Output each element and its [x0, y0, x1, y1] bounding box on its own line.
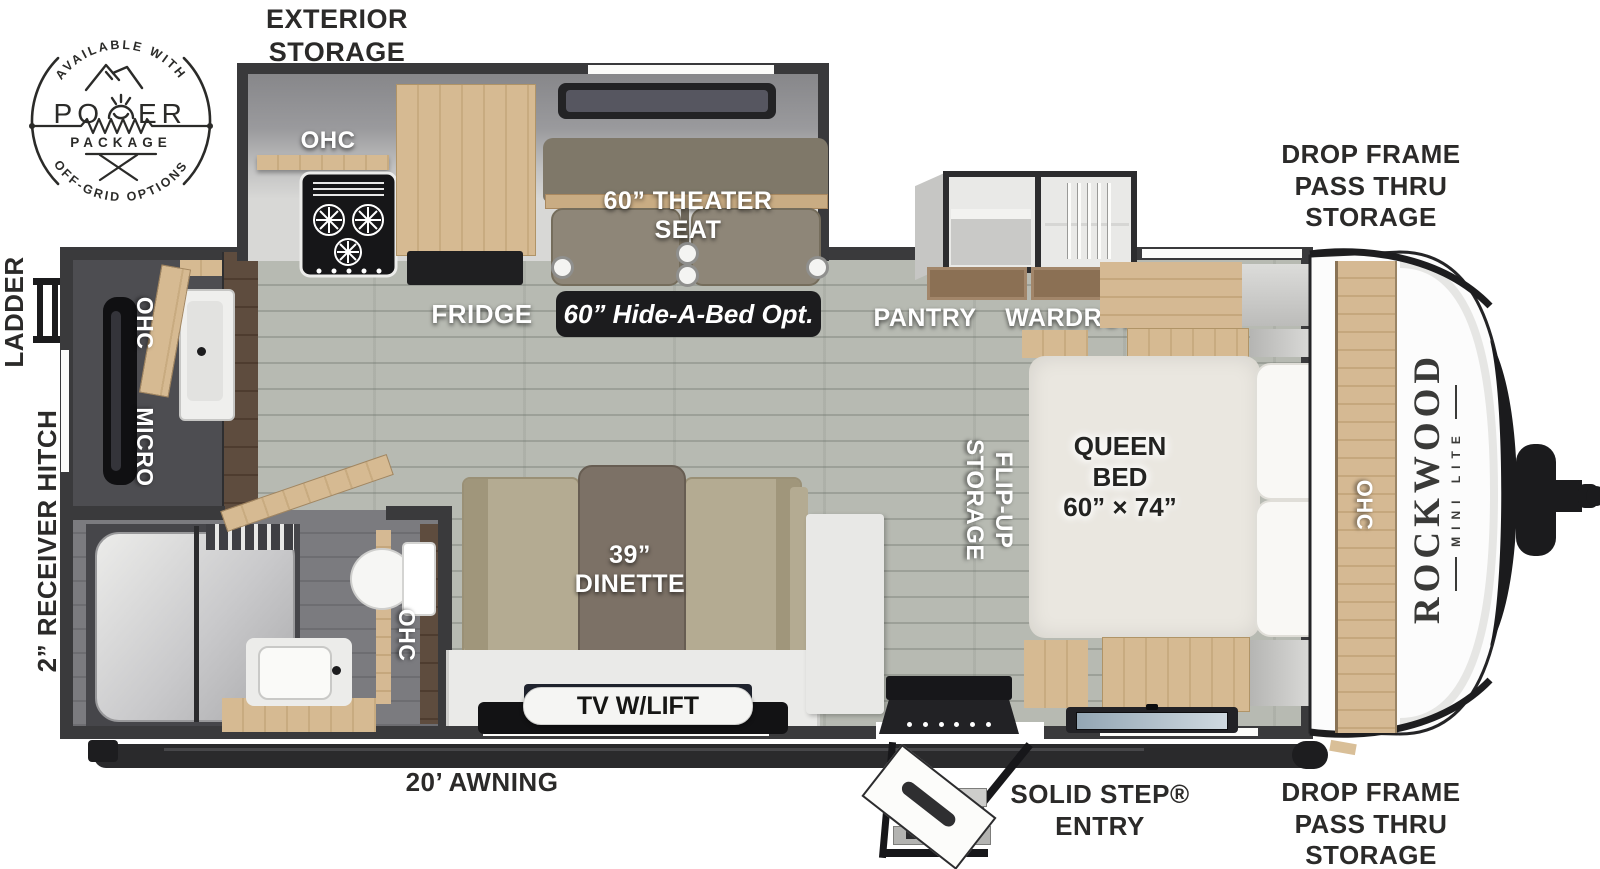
sun-icon [109, 95, 133, 118]
window-glass [566, 90, 768, 112]
dot [923, 722, 928, 727]
bathroom-ohc-label: OHC [394, 596, 420, 674]
ladder-label: LADDER [0, 232, 29, 392]
dot [954, 722, 959, 727]
solid-step-entry-label: SOLID STEP® ENTRY [995, 779, 1205, 842]
badge-arc-top-text: AVAILABLE WITH [53, 38, 190, 83]
dot [986, 722, 991, 727]
hatch-handle [1146, 704, 1158, 710]
dot [939, 722, 944, 727]
awning-end-cap [1292, 741, 1328, 769]
badge-package-text: PACKAGE [70, 135, 172, 150]
pantry-shelf-shadow [951, 219, 1031, 265]
shower-head-icon [206, 524, 294, 550]
micro-label: MICRO [132, 395, 158, 499]
floorplan-canvas: AVAILABLE WITH OFF-GRID OPTIONS PO ER PA… [0, 0, 1600, 869]
faucet-icon [332, 666, 341, 675]
hanger-icon [1097, 183, 1101, 259]
cupholder-icon [676, 242, 699, 265]
galley-sink [179, 289, 235, 421]
power-package-badge: AVAILABLE WITH OFF-GRID OPTIONS PO ER PA… [28, 28, 214, 214]
bedroom-window-top [1142, 249, 1302, 258]
hanger-icon [1087, 183, 1091, 259]
bed-frame-wood [1022, 330, 1088, 358]
bed-head-wood-band [1100, 262, 1242, 328]
exterior-storage-label: EXTERIOR STORAGE [232, 3, 442, 69]
stabilizer-jack [88, 740, 118, 762]
pantry-wardrobe-unit [943, 171, 1137, 273]
hide-a-bed-callout: 60” Hide-A-Bed Opt. [556, 291, 821, 337]
front-ohc-label: OHC [1351, 469, 1377, 541]
hitch-arm-icon [1552, 480, 1582, 512]
slideout-ohc-label: OHC [292, 127, 364, 155]
floor-hatch [1066, 707, 1238, 733]
griddle-tray [879, 700, 1019, 734]
vanity-sink [258, 646, 332, 700]
galley-ohc-label: OHC [132, 288, 158, 358]
mountains-icon [86, 65, 142, 90]
decorative-line [1455, 557, 1457, 591]
queen-bed-label: QUEEN BED 60” × 74” [1020, 431, 1220, 523]
awning-highlight [164, 748, 1144, 751]
bed-frame-wood [1024, 640, 1088, 708]
cupholder-icon [806, 256, 829, 279]
exterior-griddle [886, 676, 1012, 700]
badge-bottom-ornament [86, 154, 156, 180]
slideout-window [588, 65, 774, 74]
cupholder-icon [676, 264, 699, 287]
flip-up-storage-unit [806, 514, 884, 714]
rear-window [61, 350, 69, 472]
hanger-icon [1077, 183, 1081, 259]
shower-glass-door [194, 526, 199, 722]
drop-frame-storage-label-top: DROP FRAME PASS THRU STORAGE [1246, 139, 1496, 234]
brand-block: ROCKWOOD MINI LITE [1406, 328, 1470, 648]
hanger-icon [1107, 183, 1111, 259]
microwave-screen [111, 311, 121, 471]
dot [970, 722, 975, 727]
stove-icon [299, 171, 398, 278]
receiver-hitch-label: 2” RECEIVER HITCH [32, 382, 62, 700]
theater-seat-label: 60” THEATER SEAT [588, 187, 788, 245]
divider [1035, 177, 1041, 267]
drop-frame-storage-label-bottom: DROP FRAME PASS THRU STORAGE [1246, 777, 1496, 869]
pantry-cabinet-face [927, 267, 1027, 300]
vanity-counter [246, 638, 352, 706]
propane-tank-icon [1516, 444, 1556, 556]
awning-roll [94, 744, 1314, 768]
pantry-label: PANTRY [866, 304, 984, 333]
slideout-ohc-shelf [257, 155, 389, 170]
bathroom-wall [73, 506, 225, 520]
decorative-line [1455, 385, 1457, 419]
brand-name: ROCKWOOD [1406, 328, 1449, 648]
fridge-label: FRIDGE [421, 300, 543, 330]
brand-model-row: MINI LITE [1449, 328, 1463, 648]
bench-backrest [464, 479, 488, 653]
door-window [899, 779, 958, 829]
awning-label: 20’ AWNING [382, 767, 582, 799]
slideout-rear-window [558, 83, 776, 119]
flip-up-storage-label: FLIP-UP STORAGE [959, 425, 1017, 575]
brand-model: MINI LITE [1449, 429, 1463, 547]
pantry-shelf [951, 209, 1031, 219]
dinette-label: 39” DINETTE [535, 541, 725, 599]
cupholder-icon [551, 256, 574, 279]
dot [907, 722, 912, 727]
faucet-icon [197, 347, 206, 356]
nightstand-bottom [1102, 637, 1250, 712]
tv-lift-callout: TV W/LIFT [523, 687, 753, 725]
hatch-glass [1076, 712, 1228, 730]
hanger-icon [1067, 183, 1071, 259]
fridge [407, 251, 523, 285]
kitchen-cabinet [396, 84, 536, 256]
ladder-rung [52, 282, 58, 340]
ladder-rung [37, 282, 43, 340]
